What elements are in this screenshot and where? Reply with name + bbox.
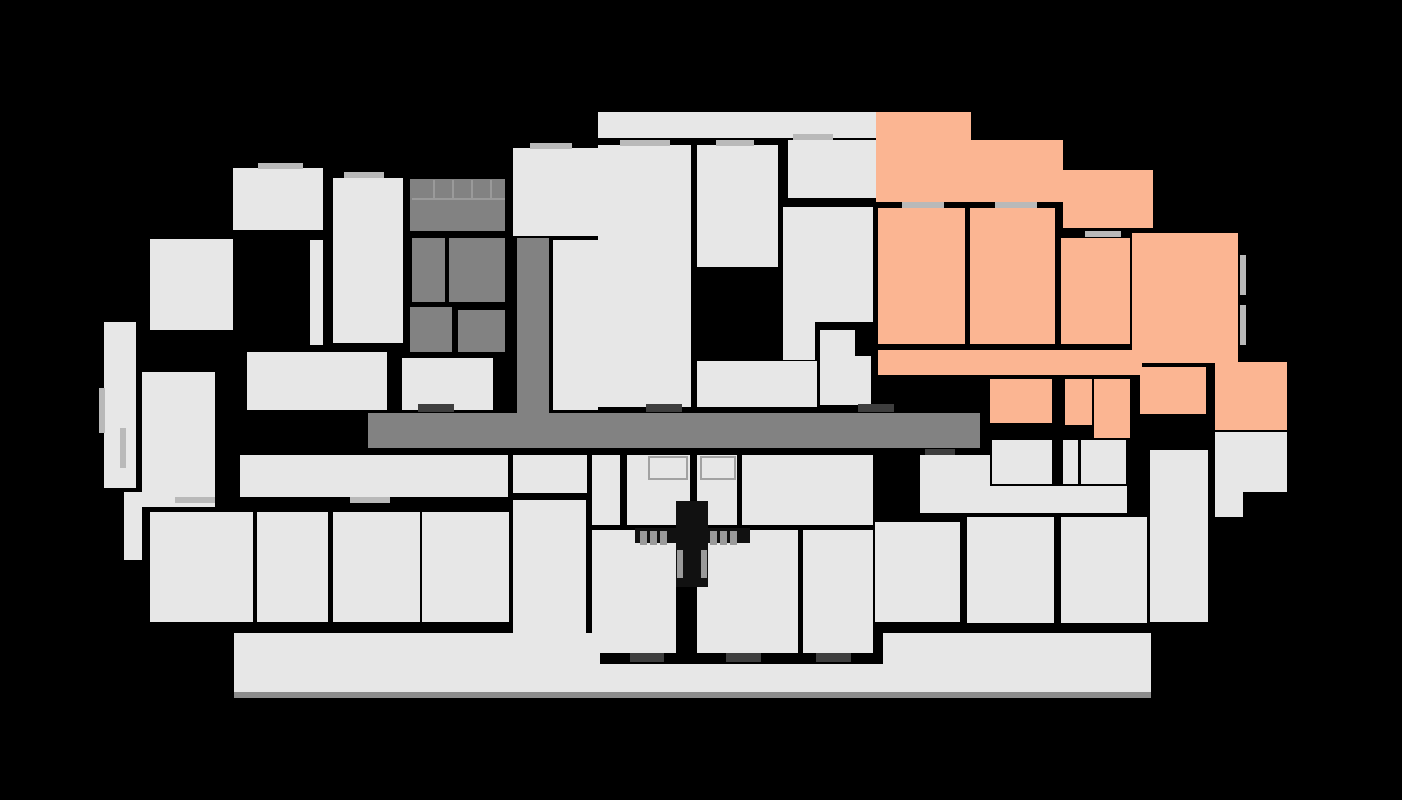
highlighted-unit-room[interactable] (1094, 379, 1130, 438)
highlighted-unit-room[interactable] (1061, 238, 1130, 344)
unit-room (967, 517, 1054, 623)
core-room (449, 238, 505, 302)
window-sill (620, 140, 670, 146)
highlighted-unit-room[interactable] (1140, 367, 1206, 414)
highlighted-unit-room[interactable] (970, 208, 1055, 344)
highlighted-unit-room[interactable] (876, 112, 971, 202)
unit-room (783, 322, 815, 360)
stair-tread (412, 198, 505, 200)
floor-plan-canvas (0, 0, 1402, 800)
unit-room (1063, 440, 1078, 484)
window-sill (995, 202, 1037, 208)
terrace-strip (598, 112, 876, 138)
stair-tread (660, 531, 667, 545)
unit-room (820, 330, 855, 356)
stair-tread (650, 531, 657, 545)
unit-room (513, 148, 600, 236)
unit-hall (247, 352, 387, 410)
highlighted-unit-room[interactable] (1215, 362, 1287, 430)
unit-room (598, 145, 691, 407)
unit-room (1081, 440, 1126, 484)
unit-room (513, 500, 586, 653)
unit-room (697, 530, 798, 653)
balcony-strip (234, 633, 600, 692)
unit-hall (920, 486, 1127, 513)
unit-hall (240, 455, 508, 497)
unit-room (697, 361, 817, 407)
door-threshold (418, 404, 454, 412)
unit-room (422, 512, 509, 622)
stair-tread (730, 531, 737, 545)
door-threshold (925, 449, 955, 455)
unit-room (1150, 450, 1208, 622)
door-threshold (858, 404, 894, 412)
unit-room (697, 145, 778, 267)
highlighted-unit-room[interactable] (971, 140, 1063, 202)
core-room (412, 238, 445, 302)
unit-room (333, 178, 403, 343)
unit-hall (920, 455, 990, 488)
highlighted-unit-room[interactable] (878, 208, 965, 344)
unit-room (310, 240, 323, 345)
core-room (458, 310, 505, 352)
window-sill (258, 163, 303, 169)
window-sill (793, 134, 833, 140)
stair-tread (677, 550, 683, 578)
stair-tread (452, 180, 454, 199)
unit-room (553, 240, 598, 410)
window-sill (99, 388, 105, 433)
unit-room (1061, 517, 1147, 623)
unit-room (1215, 432, 1287, 492)
closet-outline (700, 456, 736, 480)
balcony-left (124, 492, 142, 560)
highlighted-unit-room[interactable] (1065, 379, 1092, 425)
window-sill (1240, 255, 1246, 295)
unit-room (142, 405, 215, 507)
window-sill (1085, 231, 1121, 237)
corridor-stem (517, 238, 549, 415)
unit-room (592, 455, 620, 525)
stair-tread (720, 531, 727, 545)
highlighted-unit-hall[interactable] (878, 350, 1142, 375)
unit-room (150, 512, 253, 622)
window-sill (530, 143, 572, 149)
stair-tread (640, 531, 647, 545)
unit-room (875, 522, 960, 622)
door-threshold (646, 404, 682, 412)
window-sill (902, 202, 944, 208)
unit-room (1215, 492, 1243, 517)
stair-tread (433, 180, 435, 199)
core-room (410, 307, 452, 352)
stair-tread (490, 180, 492, 199)
window-sill (716, 140, 754, 146)
door-threshold (816, 653, 851, 662)
unit-room (783, 207, 873, 322)
unit-room (513, 455, 587, 493)
unit-room (142, 372, 215, 405)
window-sill (120, 428, 126, 468)
window-sill (344, 172, 384, 178)
balcony-strip (883, 633, 1151, 692)
highlighted-unit-room[interactable] (1063, 170, 1153, 228)
unit-hall (402, 358, 493, 410)
stair-tread (701, 550, 707, 578)
unit-room (233, 168, 323, 230)
highlighted-unit-room[interactable] (1132, 233, 1238, 363)
unit-room (150, 239, 233, 330)
unit-room (742, 455, 873, 525)
door-threshold (630, 653, 664, 662)
plan-shadow (234, 692, 1151, 698)
stair-tread (471, 180, 473, 199)
unit-room (803, 530, 873, 653)
door-threshold (726, 653, 761, 662)
highlighted-unit-room[interactable] (990, 379, 1052, 423)
unit-room (820, 356, 871, 405)
window-sill (1240, 305, 1246, 345)
unit-room (257, 512, 328, 622)
stair-tread (710, 531, 717, 545)
window-sill (350, 497, 390, 503)
balcony-strip (600, 664, 883, 692)
unit-room (333, 512, 420, 622)
window-sill (175, 497, 215, 503)
unit-room (592, 530, 676, 653)
corridor-main (368, 413, 980, 448)
closet-outline (648, 456, 688, 480)
unit-hall (788, 140, 876, 198)
unit-room (992, 440, 1052, 484)
